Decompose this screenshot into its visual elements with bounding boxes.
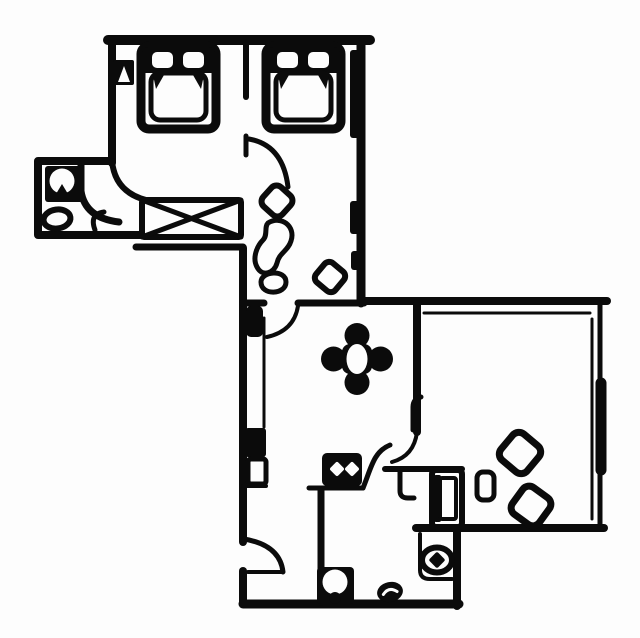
door-arc-bathroom: [81, 191, 119, 222]
pillow-icon: [183, 52, 204, 68]
corridor-furniture: [255, 183, 348, 295]
door-arc-entry: [244, 539, 283, 572]
door-arc-living: [392, 432, 417, 462]
radiator-a: [350, 201, 362, 234]
door-jamb-dining: [246, 306, 263, 337]
tilted-square-icon: [312, 259, 347, 294]
tall-cabinet-icon: [432, 470, 462, 527]
bathroom-fixtures: [42, 166, 83, 230]
sink-tap: [329, 592, 341, 604]
oval-fixture-icon: [422, 548, 452, 573]
window-bar-bedroom-right: [350, 50, 360, 138]
tilted-square-icon: [496, 429, 544, 477]
organic-blob-icon: [255, 220, 292, 273]
wardrobe-icon: [142, 200, 241, 237]
wall-kitchen-hook: [400, 471, 414, 498]
door-arc-bedroom-left: [112, 161, 146, 200]
living-room-furniture: [432, 429, 554, 529]
pillow-icon: [277, 52, 298, 68]
radiator-b: [351, 251, 361, 270]
oval-toilet-icon: [42, 208, 71, 231]
pillow-icon: [308, 52, 329, 68]
corridor-duct-block: [245, 428, 266, 457]
table-top-oval: [347, 344, 368, 374]
small-rounded-rectangle-icon: [477, 472, 494, 500]
corridor-meter-box: [248, 459, 266, 484]
bed-icon-2: [266, 46, 341, 129]
sink-bowl: [323, 570, 348, 595]
pillow-icon: [152, 52, 173, 68]
floor-plan-canvas: [0, 0, 640, 638]
round-sink-icon: [317, 567, 354, 604]
four-lobe-table-icon: [321, 323, 393, 395]
organic-blob-icon-small: [261, 273, 286, 292]
door-arc-bedroom-right: [249, 139, 288, 187]
door-arc-dining: [267, 306, 298, 337]
bed-icon-1: [141, 46, 216, 129]
tilted-square-icon: [508, 483, 554, 529]
two-burner-stove-icon: [322, 453, 362, 486]
